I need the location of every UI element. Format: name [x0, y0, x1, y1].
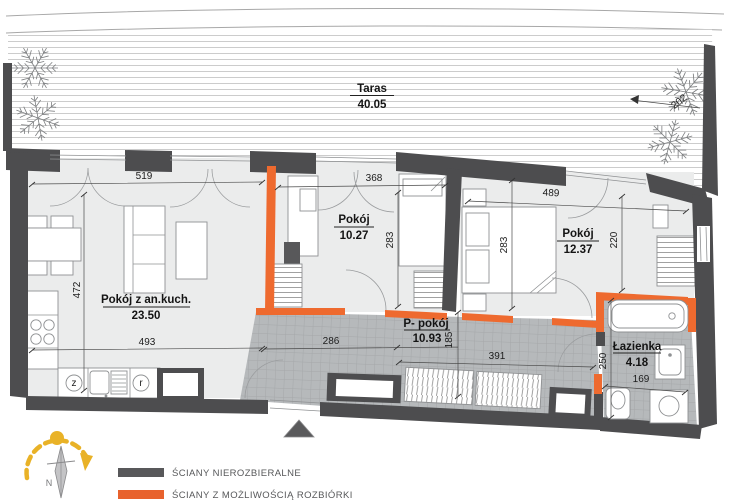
room1-area: 10.27 — [340, 230, 369, 242]
nightstand — [463, 294, 486, 311]
dim-bath-width: 169 — [633, 374, 650, 385]
dim-room1-top: 368 — [366, 173, 383, 184]
dim-hall-height: 185 — [444, 331, 455, 348]
wall-top-segment — [125, 150, 172, 172]
terrace-area: 40.05 — [358, 99, 387, 111]
terrace-outer-edge — [6, 8, 724, 16]
washbasin-bowl — [659, 349, 681, 375]
shaft-void — [336, 379, 394, 398]
entrance-marker-icon — [284, 420, 314, 437]
living-room-label: Pokój z an.kuch. — [101, 294, 191, 306]
shaft-void — [163, 373, 198, 396]
north-label: N — [46, 478, 53, 488]
hall-label: P- pokój — [403, 318, 448, 330]
orange-wall-bath-right — [688, 298, 696, 332]
shelf — [653, 205, 668, 228]
terrace-label: Taras — [357, 83, 387, 95]
dresser — [271, 264, 302, 307]
wall-bottom-left — [26, 396, 268, 414]
tap-icon — [105, 395, 108, 398]
room1-label: Pokój — [338, 214, 369, 226]
living-room-area: 23.50 — [132, 310, 161, 322]
dim-room2-right: 220 — [609, 231, 620, 248]
nightstand — [463, 189, 486, 206]
bathroom-area: 4.18 — [626, 357, 649, 369]
toilet-bowl — [611, 391, 625, 409]
pillow — [466, 250, 489, 283]
dim-room2-top: 489 — [542, 188, 560, 200]
wall-terrace-right — [702, 44, 718, 196]
built-in-wardrobe — [475, 371, 542, 408]
built-in-wardrobe — [404, 367, 474, 405]
hall-area: 10.93 — [413, 333, 442, 345]
pillow — [466, 213, 489, 246]
orange-wall-bath-left-lower — [594, 374, 602, 394]
wall-bath-jamb — [596, 332, 605, 346]
dim-hall-width: 286 — [323, 336, 340, 347]
dim-living-left: 472 — [72, 281, 83, 298]
pillow — [403, 179, 442, 196]
bathtub-drain — [669, 313, 675, 319]
cabinet-shelf — [300, 189, 316, 211]
dresser — [414, 271, 445, 308]
floor-plan-page: Taras 40.05 202 z — [0, 0, 729, 500]
chair — [27, 216, 47, 228]
side-window — [697, 226, 710, 262]
washing-machine-drum — [659, 396, 679, 416]
wardrobe — [657, 236, 695, 286]
wall-left — [10, 152, 28, 398]
dim-hall-bottom: 391 — [489, 351, 506, 362]
sun-icon — [50, 431, 64, 445]
dim-room2-left: 283 — [499, 236, 510, 253]
dim-living-bottom: 493 — [139, 337, 156, 348]
floor-plan: Taras 40.05 202 z — [0, 0, 729, 500]
chair — [51, 261, 73, 275]
sink-drainer — [111, 371, 127, 394]
shaft-void — [555, 393, 585, 413]
legend-swatch-demolition-walls — [118, 490, 164, 499]
legend-label-solid-walls: ŚCIANY NIEROZBIERALNE — [172, 467, 301, 479]
wall-top-segment — [250, 151, 316, 174]
dim-living-top: 519 — [136, 171, 153, 182]
washbasin-tap — [668, 353, 672, 357]
bathroom-label: Łazienka — [613, 341, 662, 353]
dining-table — [24, 228, 81, 261]
dishwasher-label: z — [72, 378, 77, 389]
orange-wall-bath-left — [596, 300, 604, 332]
sofa — [124, 206, 165, 293]
sink-icon — [90, 371, 109, 394]
room2-area: 12.37 — [564, 244, 593, 256]
chair — [51, 216, 73, 228]
chair — [27, 261, 47, 275]
sun-path-arrowhead — [80, 453, 93, 471]
dim-bath-height: 250 — [598, 352, 609, 369]
room2-label: Pokój — [562, 228, 593, 240]
legend-label-demolition-walls: ŚCIANY Z MOŻLIWOŚCIĄ ROZBIÓRKI — [172, 489, 353, 500]
wall-bath-lower — [594, 392, 603, 420]
kitchen-counter — [26, 291, 58, 369]
legend-swatch-solid-walls — [118, 468, 164, 477]
terrace-left-wall — [3, 63, 12, 151]
dim-room1-right: 283 — [385, 231, 396, 248]
coffee-table — [176, 222, 207, 279]
legend: ŚCIANY NIEROZBIERALNE ŚCIANY Z MOŻLIWOŚC… — [118, 467, 353, 500]
orange-wall-hall-left — [256, 308, 345, 315]
compass: N — [27, 431, 93, 498]
